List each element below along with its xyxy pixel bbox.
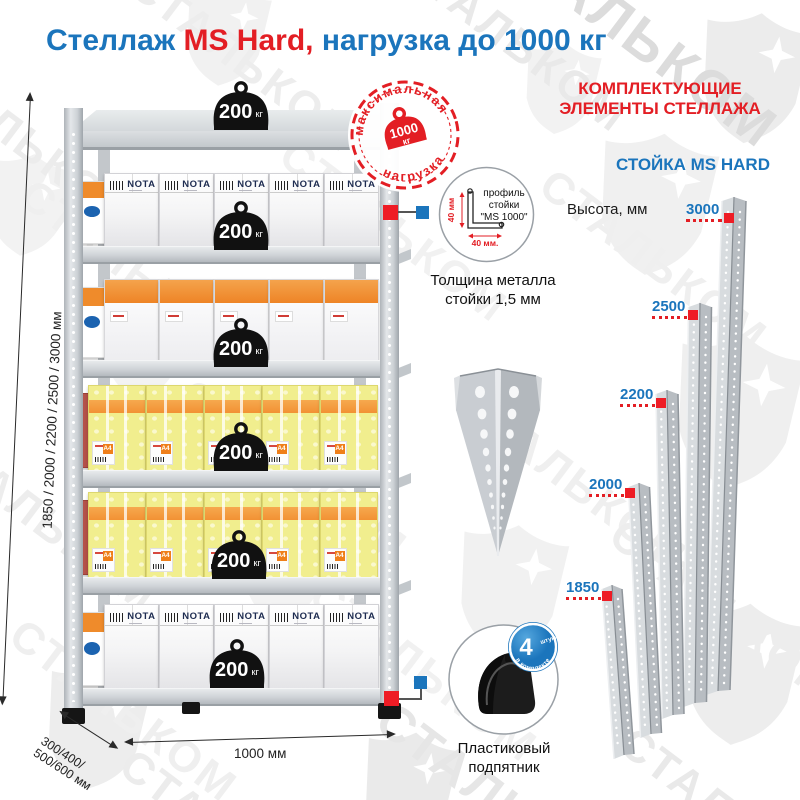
post-height-label-2200: 2200 bbox=[620, 386, 653, 403]
max-load-stamp: максимальная нагрузка 1000 кг bbox=[346, 76, 464, 199]
svg-text:профиль: профиль bbox=[483, 187, 524, 199]
svg-text:40 мм: 40 мм bbox=[446, 198, 456, 222]
page-title: Стеллаж MS Hard, нагрузка до 1000 кг bbox=[46, 24, 607, 58]
title-part-blue2: нагрузка до 1000 кг bbox=[313, 24, 606, 57]
weight-200kg-icon: 200кг bbox=[194, 638, 280, 690]
rack-foot bbox=[182, 702, 200, 714]
thickness-caption: Толщина металла стойки 1,5 мм bbox=[418, 272, 568, 310]
post-height-label-3000: 3000 bbox=[686, 201, 719, 218]
weight-200kg-icon: 200кг bbox=[198, 80, 284, 132]
callout-marker-red-top bbox=[383, 205, 398, 220]
leader-dots bbox=[686, 219, 722, 222]
stand-subheader: СТОЙКА MS HARD bbox=[597, 155, 789, 175]
callout-line-bottom-h bbox=[398, 698, 422, 700]
leader-dots bbox=[589, 494, 624, 497]
quantity-badge: 4 штуки в комплекте bbox=[507, 621, 559, 673]
leader-marker bbox=[602, 591, 612, 601]
svg-text:4: 4 bbox=[519, 634, 533, 661]
angle-post-photo bbox=[448, 366, 548, 564]
svg-text:стойки: стойки bbox=[489, 200, 520, 211]
callout-line-bottom-v bbox=[420, 689, 422, 700]
weight-200kg-icon: 200кг bbox=[198, 200, 284, 252]
height-caption: Высота, мм bbox=[567, 201, 647, 218]
weight-200kg-icon: 200кг bbox=[196, 529, 282, 581]
title-part-red: MS Hard, bbox=[183, 24, 313, 57]
promo-page: СТАЛЬКОМСТАЛЬКОМСТАЛЬКОМСТАЛЬКОМСТАЛЬКОМ… bbox=[0, 0, 800, 800]
leader-marker bbox=[625, 488, 635, 498]
post-height-label-2500: 2500 bbox=[652, 298, 685, 315]
weight-200kg-icon: 200кг bbox=[198, 421, 284, 473]
callout-marker-blue-bottom bbox=[414, 676, 427, 689]
leader-dots bbox=[652, 316, 687, 319]
leader-dots bbox=[566, 597, 601, 600]
foot-caption: Пластиковый подпятник bbox=[424, 740, 584, 778]
post-height-label-2000: 2000 bbox=[589, 476, 622, 493]
title-part-blue: Стеллаж bbox=[46, 24, 183, 57]
callout-marker-blue-top bbox=[416, 206, 429, 219]
weight-200kg-icon: 200кг bbox=[198, 317, 284, 369]
leader-marker bbox=[656, 398, 666, 408]
leader-dots bbox=[620, 404, 655, 407]
width-dimension-label: 1000 мм bbox=[234, 746, 286, 761]
leader-marker bbox=[724, 213, 734, 223]
svg-text:40 мм.: 40 мм. bbox=[472, 238, 499, 248]
components-header: КОМПЛЕКТУЮЩИЕ ЭЛЕМЕНТЫ СТЕЛЛАЖА bbox=[541, 79, 779, 119]
post-height-label-1850: 1850 bbox=[566, 579, 599, 596]
leader-marker bbox=[688, 310, 698, 320]
svg-text:"MS 1000": "MS 1000" bbox=[480, 212, 528, 223]
callout-marker-red-bottom bbox=[384, 691, 399, 706]
